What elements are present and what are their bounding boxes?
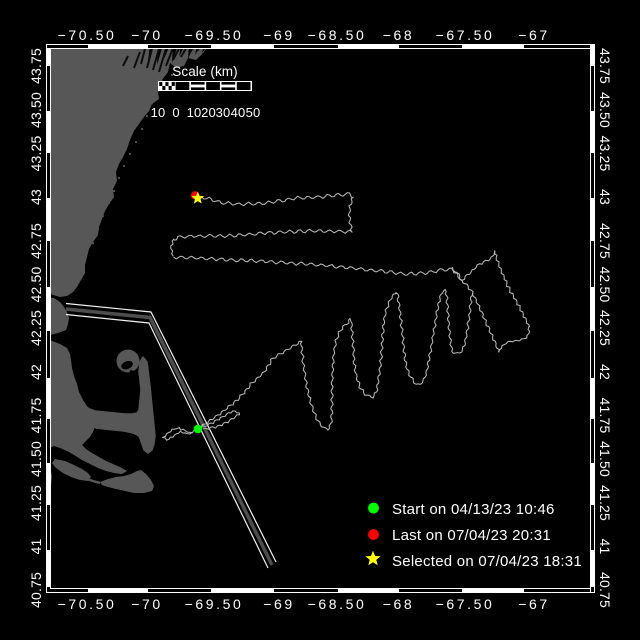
- svg-text:−67.50: −67.50: [436, 596, 495, 612]
- svg-text:43.25: 43.25: [28, 135, 44, 171]
- svg-text:43.75: 43.75: [597, 48, 613, 84]
- svg-text:43.50: 43.50: [597, 92, 613, 128]
- svg-text:−68: −68: [383, 27, 415, 43]
- svg-text:−70.50: −70.50: [58, 596, 117, 612]
- svg-text:Selected on 07/04/23 18:31: Selected on 07/04/23 18:31: [392, 553, 582, 570]
- svg-text:41.75: 41.75: [597, 397, 613, 433]
- svg-text:43.25: 43.25: [597, 135, 613, 171]
- svg-text:−69: −69: [263, 27, 295, 43]
- svg-text:41: 41: [597, 539, 613, 555]
- svg-text:Scale (km): Scale (km): [172, 64, 238, 79]
- svg-text:−67.50: −67.50: [436, 27, 495, 43]
- svg-text:42: 42: [28, 364, 44, 380]
- svg-text:41: 41: [28, 539, 44, 555]
- svg-text:42.50: 42.50: [28, 266, 44, 302]
- svg-text:−68.50: −68.50: [308, 27, 367, 43]
- svg-text:41.75: 41.75: [28, 397, 44, 433]
- svg-text:40.75: 40.75: [597, 572, 613, 608]
- svg-text:0: 0: [172, 105, 179, 120]
- svg-text:42: 42: [597, 364, 613, 380]
- svg-text:50: 50: [246, 105, 261, 120]
- svg-text:−69.50: −69.50: [185, 596, 244, 612]
- svg-text:42.25: 42.25: [597, 310, 613, 346]
- svg-text:−70.50: −70.50: [58, 27, 117, 43]
- svg-text:10: 10: [151, 105, 166, 120]
- svg-text:Last on 07/04/23 20:31: Last on 07/04/23 20:31: [392, 527, 551, 544]
- svg-text:41.50: 41.50: [28, 441, 44, 477]
- svg-text:−68: −68: [383, 596, 415, 612]
- svg-text:43.50: 43.50: [28, 92, 44, 128]
- svg-text:42.75: 42.75: [28, 223, 44, 259]
- svg-text:42.25: 42.25: [28, 310, 44, 346]
- svg-text:40.75: 40.75: [28, 572, 44, 608]
- svg-text:Start on 04/13/23 10:46: Start on 04/13/23 10:46: [392, 501, 555, 518]
- svg-text:43: 43: [597, 189, 613, 205]
- svg-text:−70: −70: [131, 27, 163, 43]
- svg-text:43.75: 43.75: [28, 48, 44, 84]
- svg-text:40: 40: [231, 105, 246, 120]
- svg-text:41.25: 41.25: [597, 485, 613, 521]
- svg-text:−67: −67: [518, 27, 550, 43]
- svg-text:41.50: 41.50: [597, 441, 613, 477]
- svg-text:42.50: 42.50: [597, 266, 613, 302]
- svg-text:−70: −70: [131, 596, 163, 612]
- svg-text:−67: −67: [518, 596, 550, 612]
- svg-text:−68.50: −68.50: [308, 596, 367, 612]
- svg-text:−69.50: −69.50: [185, 27, 244, 43]
- svg-text:41.25: 41.25: [28, 485, 44, 521]
- svg-text:20: 20: [201, 105, 216, 120]
- svg-text:−69: −69: [263, 596, 295, 612]
- svg-text:42.75: 42.75: [597, 223, 613, 259]
- svg-text:43: 43: [28, 189, 44, 205]
- svg-text:30: 30: [216, 105, 231, 120]
- svg-text:10: 10: [187, 105, 202, 120]
